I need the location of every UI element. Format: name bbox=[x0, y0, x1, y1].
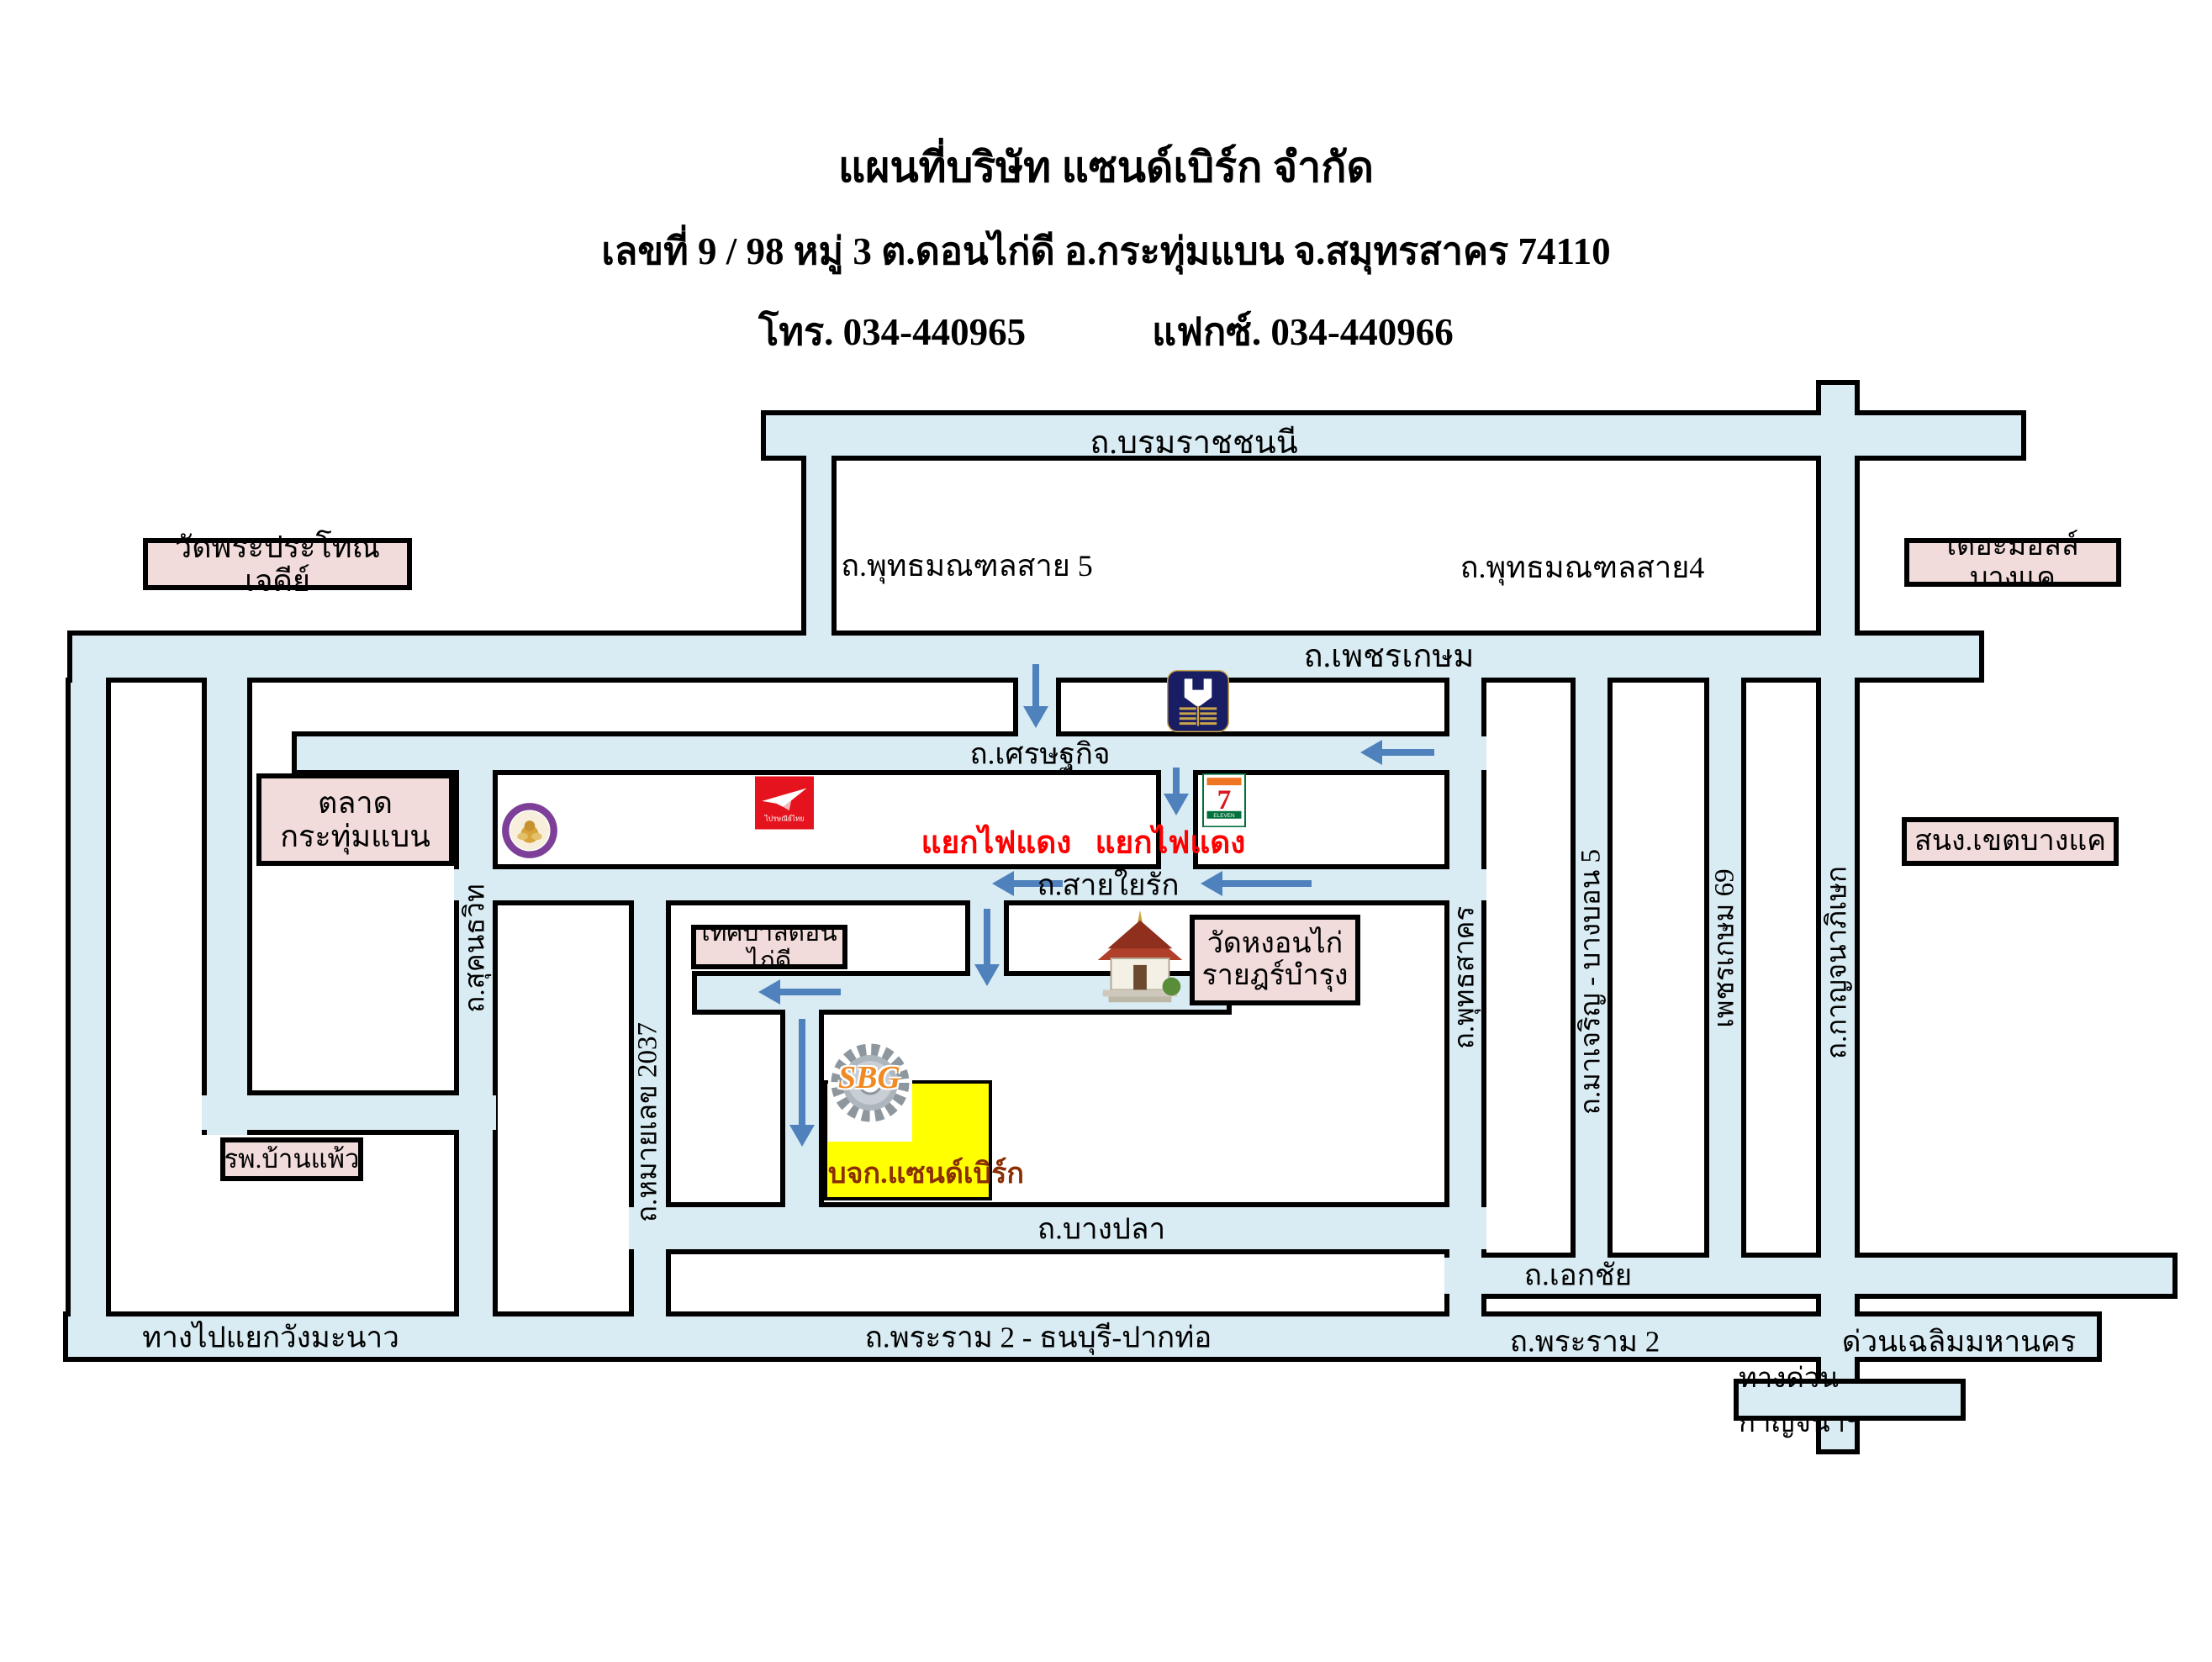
junction bbox=[806, 631, 831, 636]
junction bbox=[1018, 731, 1056, 736]
route-arrow-down bbox=[789, 1019, 815, 1147]
road-label: ถ.มาเจริญ - บางบอน 5 bbox=[1578, 849, 1606, 1115]
route-arrow-down bbox=[1164, 768, 1189, 815]
junction bbox=[785, 1010, 819, 1015]
junction bbox=[970, 900, 1004, 905]
junction bbox=[459, 770, 493, 775]
junction bbox=[634, 1311, 666, 1316]
junction bbox=[1444, 869, 1486, 900]
landmark-tessaban-donkaidee: เทศบาลดอนไก่ดี bbox=[691, 925, 847, 969]
bank-icon bbox=[1167, 669, 1229, 733]
temple-image bbox=[1086, 910, 1194, 1010]
landmark-wat-ngonkai: วัดหงอนไก่รายฎร์บำรุง bbox=[1190, 915, 1360, 1005]
page-title: แผนที่บริษัท แซนด์เบิร์ก จำกัด bbox=[0, 135, 2212, 201]
route-arrow-down bbox=[974, 909, 1000, 986]
junction bbox=[1444, 1207, 1486, 1249]
junction bbox=[1444, 1258, 1486, 1294]
road-label: ถ.พระราม 2 bbox=[1510, 1327, 1660, 1357]
junction bbox=[1709, 678, 1741, 683]
municipal-seal-icon bbox=[500, 801, 559, 860]
thai-post-icon: ไปรษณีย์ไทย bbox=[755, 776, 814, 830]
road-label: ถ.พุทธสาคร bbox=[1452, 906, 1480, 1049]
svg-text:7: 7 bbox=[1217, 784, 1232, 815]
junction bbox=[459, 1311, 493, 1316]
route-arrow-left bbox=[1201, 871, 1312, 896]
road-label: ด่วนเฉลิมมหานคร bbox=[1842, 1327, 2077, 1357]
seven-eleven-icon: 7 ELEVEN bbox=[1202, 773, 1246, 827]
map-canvas: แผนที่บริษัท แซนด์เบิร์ก จำกัด เลขที่ 9 … bbox=[0, 0, 2212, 1662]
road-label: ถ.บรมราชชนนี bbox=[1090, 427, 1297, 459]
road-phutthamonthon-sai5 bbox=[801, 456, 837, 636]
junction bbox=[72, 678, 106, 683]
landmark-the-mall-bangkhae: เดอะมอลล์บางแค bbox=[1904, 538, 2121, 587]
junction bbox=[806, 456, 831, 461]
junction-label: แยกไฟแดง bbox=[1095, 828, 1246, 859]
junction bbox=[1576, 1253, 1608, 1258]
svg-text:ELEVEN: ELEVEN bbox=[1213, 813, 1235, 819]
contact-line: โทร. 034-440965 แฟกซ์. 034-440966 bbox=[0, 301, 2212, 361]
road-label: ถ.สายใยรัก bbox=[1037, 871, 1179, 900]
road-sukhonthawit bbox=[454, 770, 498, 1316]
junction bbox=[634, 900, 666, 905]
road-market-west-vertical bbox=[202, 678, 252, 1135]
phone-number: โทร. 034-440965 bbox=[758, 301, 1026, 361]
road-label: ถ.หมายเลข 2037 bbox=[635, 1022, 663, 1222]
junction bbox=[202, 1095, 252, 1130]
kanchana-expressway-sign: ทางด่วนกาญจนาฯ bbox=[1734, 1379, 1966, 1421]
road-far-left-vertical bbox=[66, 678, 111, 1316]
company-label: บจก.แซนด์เบิร์ก bbox=[828, 1150, 988, 1195]
junction bbox=[1709, 1253, 1741, 1258]
landmark-bangkhae-district-office: สนง.เขตบางแค bbox=[1902, 817, 2119, 866]
junction bbox=[1444, 736, 1486, 770]
municipal-seal-logo bbox=[500, 801, 559, 860]
junction bbox=[785, 1202, 819, 1207]
landmark-banphaeo-hospital: รพ.บ้านแพ้ว bbox=[220, 1137, 363, 1181]
road-label: ถ.เศรษฐกิจ bbox=[969, 740, 1110, 769]
landmark-talat-krathum-baen: ตลาดกระทุ่มแบน bbox=[256, 773, 454, 866]
junction bbox=[1449, 678, 1481, 683]
road-label: เพชรเกษม 69 bbox=[1712, 868, 1740, 1027]
thai-post-logo: ไปรษณีย์ไทย bbox=[755, 776, 814, 830]
route-arrow-down bbox=[1023, 664, 1048, 728]
temple-logo bbox=[1086, 910, 1194, 1010]
road-label: ถ.พุทธมณฑลสาย 5 bbox=[841, 551, 1093, 581]
road-setthakit bbox=[292, 731, 1486, 775]
junction-label: แยกไฟแดง bbox=[921, 828, 1072, 859]
svg-text:ไปรษณีย์ไทย: ไปรษณีย์ไทย bbox=[764, 815, 805, 823]
road-label: ถ.พุทธมณฑลสาย4 bbox=[1460, 552, 1705, 583]
junction bbox=[1576, 678, 1608, 683]
road-label: ทางไปแยกวังมะนาว bbox=[142, 1323, 399, 1353]
route-arrow-left bbox=[1360, 740, 1434, 765]
junction bbox=[1816, 415, 1860, 456]
junction bbox=[1449, 1311, 1481, 1316]
seven-eleven-logo: 7 ELEVEN bbox=[1202, 773, 1246, 827]
junction bbox=[71, 1311, 106, 1316]
junction bbox=[1816, 636, 1860, 678]
junction bbox=[1816, 1258, 1860, 1294]
road-label: ถ.กาญจนาภิเษก bbox=[1824, 866, 1852, 1059]
road-saiyairak bbox=[454, 864, 1486, 905]
landmark-wat-phra-prathon-chedi: วัดพระประโทณเจดีย์ bbox=[143, 538, 412, 590]
road-label: ถ.สุคนธวิท bbox=[462, 884, 490, 1012]
sbg-logo-text: SBG bbox=[838, 1059, 900, 1096]
bank-logo bbox=[1167, 669, 1229, 733]
route-arrow-left bbox=[758, 979, 841, 1005]
company-address: เลขที่ 9 / 98 หมู่ 3 ต.ดอนไก่ดี อ.กระทุ่… bbox=[0, 220, 2212, 281]
junction bbox=[207, 678, 247, 683]
fax-number: แฟกซ์. 034-440966 bbox=[1152, 301, 1454, 361]
road-label: ถ.เพชรเกษม bbox=[1304, 641, 1475, 673]
junction bbox=[454, 1095, 496, 1130]
road-label: ถ.เอกชัย bbox=[1524, 1261, 1632, 1290]
road-label: ถ.พระราม 2 - ธนบุรี-ปากท่อ bbox=[865, 1323, 1212, 1353]
road-label: ถ.บางปลา bbox=[1037, 1215, 1165, 1244]
